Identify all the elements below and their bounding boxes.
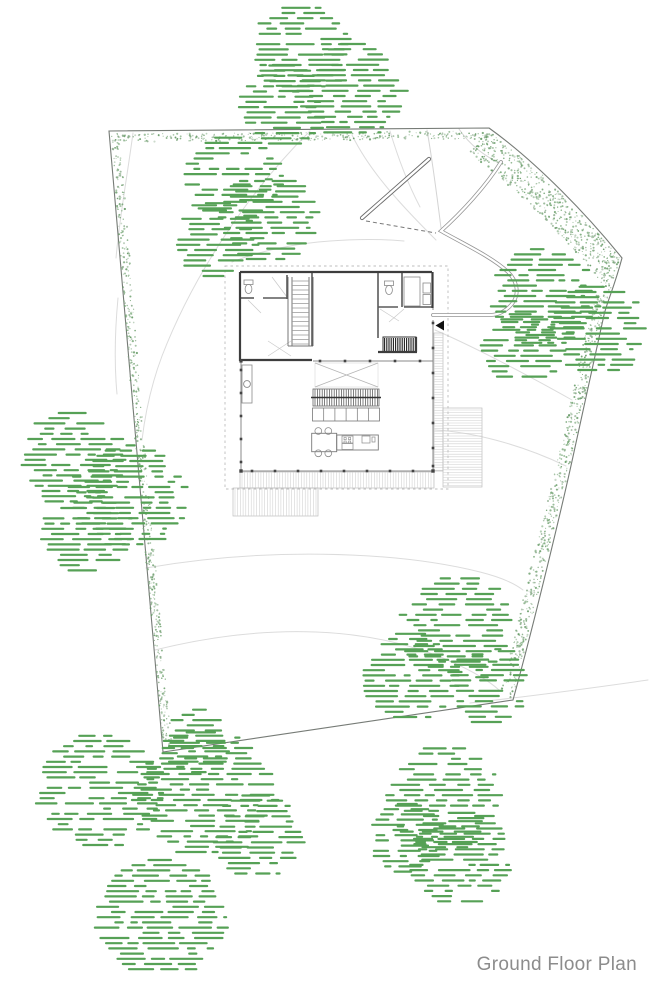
drawing-caption: Ground Floor Plan — [477, 954, 637, 976]
tree-canopies — [21, 7, 647, 971]
boundary-hedge-stipple — [111, 131, 620, 746]
site-boundary — [109, 128, 622, 752]
house-plan — [239, 272, 444, 473]
entry-arrow-icon — [436, 321, 445, 331]
site-plan-drawing — [0, 0, 650, 992]
site-plan: Ground Floor Plan — [0, 0, 650, 992]
roof-overhang-outline — [225, 266, 448, 489]
drawing-caption-text: Ground Floor Plan — [477, 954, 637, 975]
driveway — [362, 159, 517, 315]
